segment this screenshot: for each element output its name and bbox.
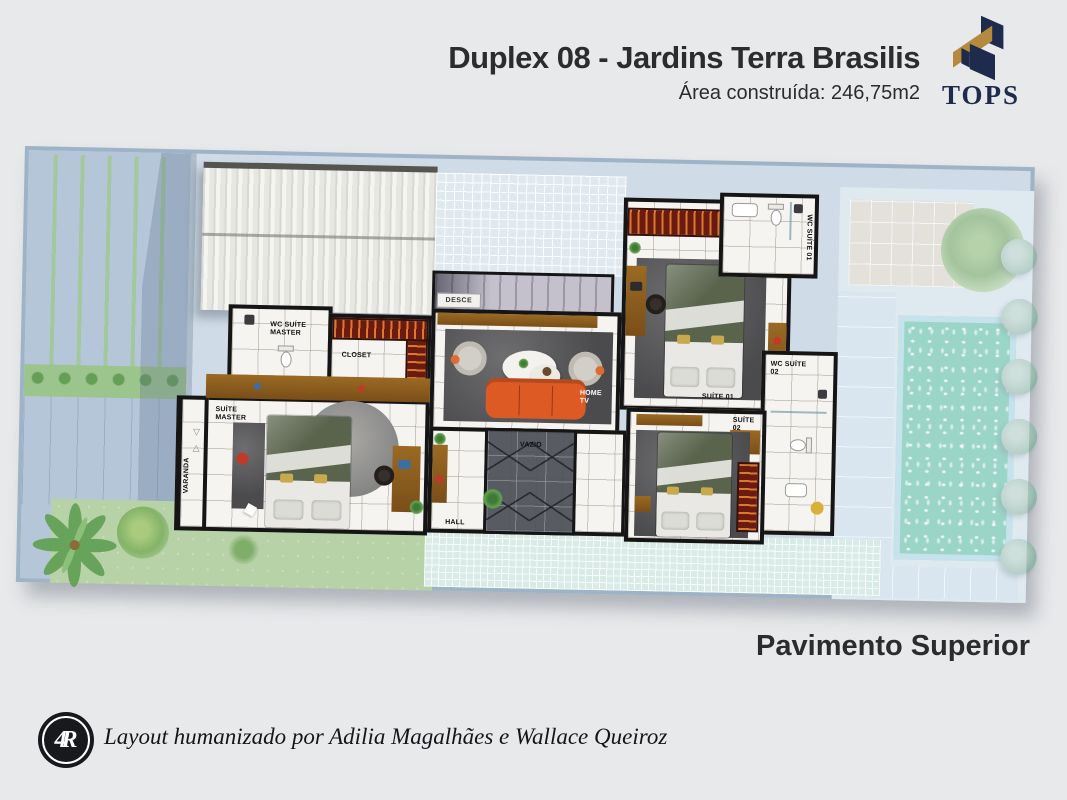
void-plant-icon: [483, 489, 503, 509]
toilet-icon: [806, 437, 812, 453]
stool-decor: [810, 502, 823, 515]
nightstand: [634, 496, 650, 512]
room-label-suite-master: SUÍTE MASTER: [215, 406, 246, 423]
room-varanda: VARANDA ▽ △: [174, 395, 209, 531]
toilet-bowl-icon: [770, 210, 781, 226]
room-label-vazio: VAZIO: [520, 441, 542, 450]
toilet-bowl-icon: [790, 439, 806, 451]
bed: [265, 415, 351, 529]
room-label-wc-suite-master: WC SUÍTE MASTER: [270, 321, 306, 339]
designer-monogram: 4R: [38, 712, 94, 768]
room-label-suite-02: SUÍTE 02: [733, 417, 755, 434]
hall-desk: [432, 445, 448, 503]
poster-page: Duplex 08 - Jardins Terra Brasilis Área …: [0, 0, 1067, 800]
dresser: [636, 414, 702, 426]
bed: [664, 264, 745, 398]
room-label-hall: HALL: [445, 518, 465, 527]
closet-rack: [405, 339, 428, 381]
page-title: Duplex 08 - Jardins Terra Brasilis: [448, 40, 920, 76]
room-closet: CLOSET: [327, 313, 432, 385]
shower-glass: [771, 411, 827, 414]
room-wc-suite-master: WC SUÍTE MASTER: [227, 304, 333, 381]
room-label-closet: CLOSET: [342, 352, 372, 361]
room-wc-suite-02: WC SUÍTE 02: [758, 350, 838, 536]
room-label-wc-suite-02: WC SUÍTE 02: [770, 361, 806, 379]
plant-icon: [629, 242, 641, 254]
bed: [656, 432, 732, 538]
sofa: [485, 378, 586, 420]
sink-icon: [732, 203, 758, 218]
palm-tree-icon: [32, 502, 118, 588]
room-label-suite-01: SUÍTE 01: [702, 393, 734, 402]
room-suite-master: SUÍTE MASTER: [201, 396, 430, 536]
void-vazio: VAZIO: [483, 428, 577, 536]
tops-logo-icon: [946, 12, 1016, 84]
room-suite-02: SUÍTE 02: [624, 408, 767, 545]
metal-roof: [201, 162, 438, 315]
room-label-wc-suite-01: WC SUÍTE 01: [803, 214, 812, 260]
arrow-down-icon: ▽: [193, 428, 200, 437]
laptop-icon: [398, 460, 410, 469]
desk: [625, 266, 646, 336]
header: Duplex 08 - Jardins Terra Brasilis Área …: [448, 40, 920, 105]
hall-plant-icon: [434, 433, 446, 445]
brand-logo: TOPS: [929, 12, 1033, 111]
closet-rack: [332, 317, 428, 341]
decor-dot: [254, 383, 261, 390]
monitor-icon: [630, 282, 642, 291]
runner-rug: [231, 422, 265, 509]
shower-head-icon: [244, 315, 254, 325]
toilet-bowl-icon: [280, 351, 291, 367]
plant-icon: [409, 500, 423, 514]
built-area-subtitle: Área construída: 246,75m2: [448, 82, 920, 105]
room-living-home-tv: HOME TV: [429, 309, 622, 443]
decor-dot: [358, 385, 365, 392]
designer-logo: 4R: [38, 712, 94, 768]
sink-icon: [785, 483, 807, 497]
tv-console: [437, 313, 597, 328]
room-wc-suite-01: WC SUÍTE 01: [718, 193, 819, 279]
site-plan: WC SUÍTE MASTER CLOSET SUÍTE MASTER: [16, 146, 1035, 603]
closet-rack: [736, 462, 759, 532]
headboard-console: [206, 374, 430, 403]
room-label-home-tv: HOME TV: [580, 390, 602, 407]
brand-name: TOPS: [929, 80, 1033, 111]
shower-glass: [789, 202, 792, 240]
room-label-varanda: VARANDA: [183, 457, 192, 493]
shower-head-icon: [794, 204, 803, 213]
arrow-up-icon: △: [193, 444, 200, 453]
credit-line: Layout humanizado por Adilia Magalhães e…: [104, 724, 667, 750]
shower-head-icon: [818, 390, 827, 399]
stairs-label-desce: DESCE: [437, 293, 481, 309]
skylight-pergola: [434, 173, 626, 277]
floor-label: Pavimento Superior: [756, 630, 1030, 663]
